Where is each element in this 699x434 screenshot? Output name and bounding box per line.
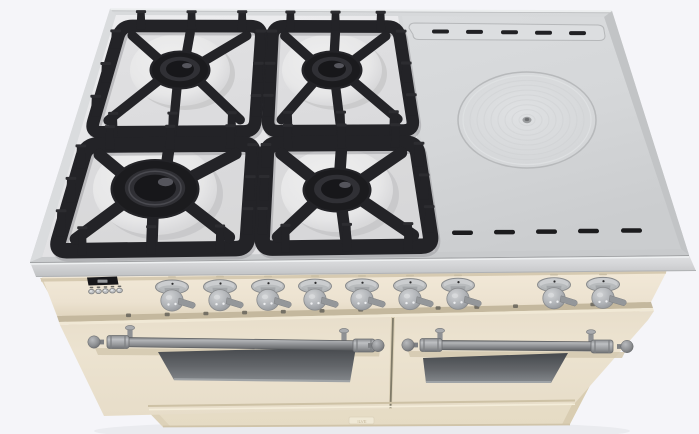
- svg-text:ILVE: ILVE: [357, 419, 366, 424]
